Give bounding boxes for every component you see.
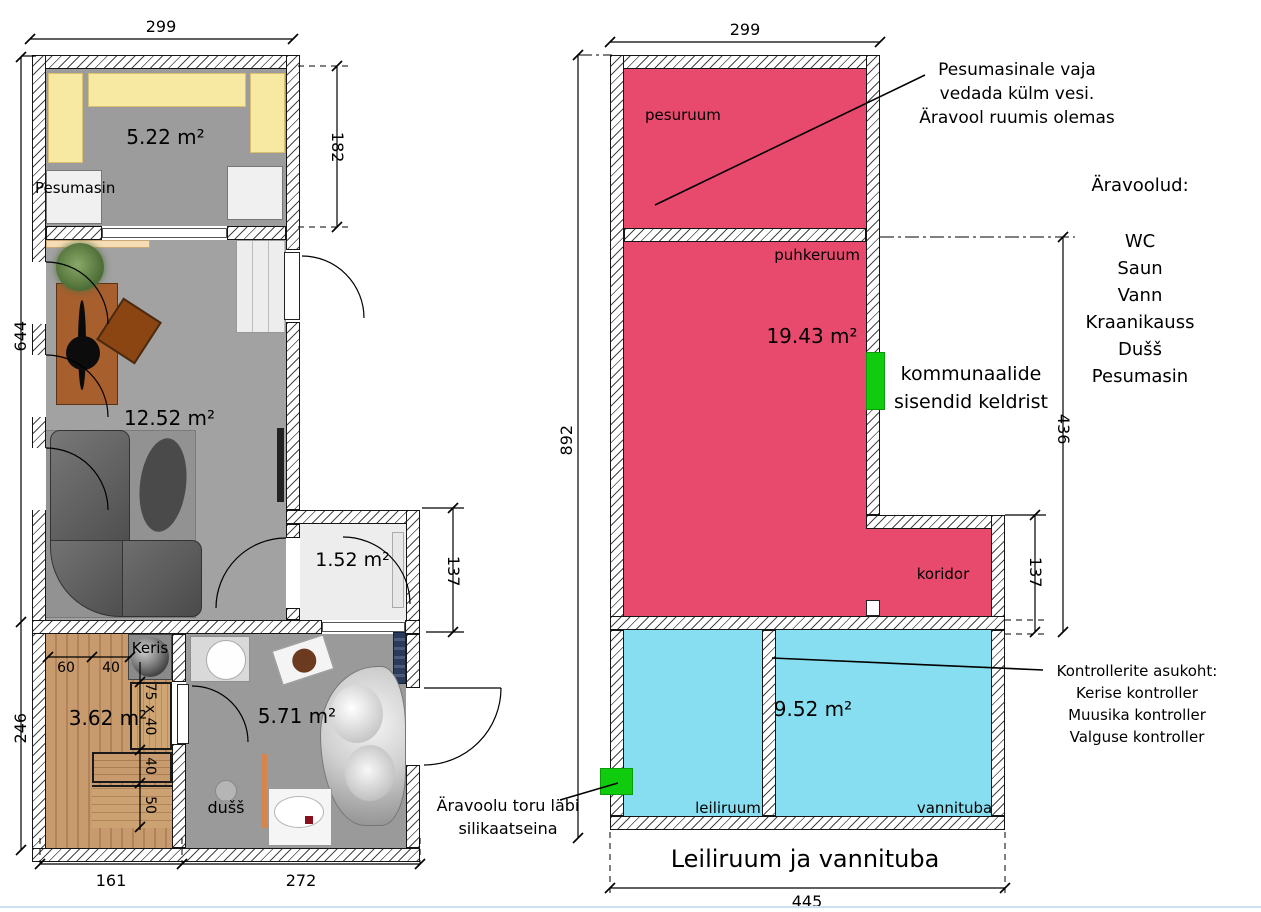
sauna-door-leaf	[177, 684, 189, 744]
sofa-horizontal	[122, 540, 202, 617]
area-laundry: 5.22 m²	[118, 126, 213, 149]
note-controllers: Kontrollerite asukoht: Kerise kontroller…	[1042, 660, 1232, 748]
dim-892: 892	[558, 410, 576, 470]
living-wc-door-gap	[286, 538, 300, 608]
wall-segment	[610, 616, 1005, 630]
leiliruum-room	[624, 630, 762, 816]
wall-segment	[406, 634, 420, 688]
counter-right	[250, 73, 285, 153]
wall-segment	[46, 226, 102, 240]
sauna-dim-50: 50	[142, 775, 158, 835]
note-drain-pipe: Äravoolu toru läbi silikaatseina	[428, 794, 588, 840]
wall-segment	[610, 55, 624, 630]
sink-basin	[274, 796, 324, 828]
label-puhkeruum: puhkeruum	[768, 247, 860, 264]
wall-segment	[405, 620, 420, 634]
dim-445: 445	[777, 893, 837, 911]
appliance-box	[227, 166, 283, 220]
area-wc: 1.52 m²	[310, 550, 395, 572]
sauna-dim-40a: 40	[97, 660, 125, 676]
label-duss: dušš	[194, 799, 258, 817]
wall-segment	[866, 55, 880, 515]
wall-segment	[610, 55, 880, 69]
wall-segment	[286, 608, 300, 620]
toilet-bowl	[206, 640, 246, 680]
koridor-door-post	[866, 600, 880, 616]
label-vannituba: vannituba	[912, 800, 997, 817]
dim-436: 436	[1054, 399, 1072, 459]
plant	[56, 243, 104, 291]
wall-segment	[762, 630, 776, 816]
wall-segment	[286, 510, 420, 524]
window-gap	[32, 262, 46, 324]
entrance-door-leaf	[284, 252, 300, 320]
wall-segment	[227, 226, 286, 240]
dim-top-right-plan: 299	[715, 21, 775, 39]
wall-segment	[866, 515, 1005, 529]
wall-segment	[286, 322, 300, 510]
area-bath-section: 9.52 m²	[768, 698, 858, 721]
wc-room-floor	[300, 524, 406, 620]
wall-segment	[32, 620, 322, 634]
dim-161: 161	[81, 872, 141, 890]
wall-segment	[610, 816, 1005, 830]
drains-heading: Äravoolud:	[1080, 176, 1200, 197]
wall-segment	[991, 630, 1005, 816]
counter-top	[88, 73, 246, 107]
label-pesumasin: Pesumasin	[35, 180, 135, 197]
utility-inlet-marker	[866, 352, 885, 410]
vannituba-room	[776, 630, 991, 816]
wall-segment	[406, 510, 420, 634]
sauna-bench-low	[92, 785, 172, 828]
area-bath: 5.71 m²	[247, 705, 347, 728]
pesuruum-room	[624, 69, 866, 228]
tv	[277, 428, 284, 502]
dim-272: 272	[271, 872, 331, 890]
note-utilities: kommunaalide sisendid keldrist	[886, 360, 1056, 416]
wall-segment	[624, 228, 866, 242]
window-gap	[32, 355, 46, 417]
wall-segment	[286, 524, 300, 538]
label-keris: Keris	[128, 640, 172, 657]
counter-left	[48, 73, 83, 163]
wall-segment	[172, 634, 186, 682]
note-washer: Pesumasinale vaja vedada külm vesi. Ärav…	[903, 58, 1131, 130]
towel-rail	[262, 754, 267, 828]
dim-137-wc: 137	[444, 541, 462, 601]
pass-through-opening	[102, 228, 227, 238]
wall-segment	[991, 515, 1005, 630]
drain-pipe-marker	[600, 768, 633, 795]
dim-137-koridor: 137	[1026, 542, 1044, 602]
wardrobe	[236, 240, 286, 333]
area-puhkeruum: 19.43 m²	[762, 325, 862, 348]
label-pesuruum: pesuruum	[645, 107, 735, 124]
wall-segment	[286, 55, 300, 250]
plan-title: Leiliruum ja vannituba	[650, 846, 960, 874]
wall-segment	[406, 765, 420, 848]
label-leiliruum: leiliruum	[688, 800, 768, 817]
sauna-dim-75x40: 75 x 40	[142, 675, 158, 743]
window-gap	[32, 448, 46, 510]
dim-644: 644	[12, 306, 30, 366]
floorplan-canvas: 299 182 644 246 137 161 272 5.22 m² 12.5…	[0, 0, 1261, 912]
bath-exterior-door-gap	[406, 688, 420, 765]
sofa-vertical	[50, 430, 130, 542]
sauna-bench-mid	[92, 752, 172, 783]
sauna-dim-60: 60	[52, 660, 80, 676]
wall-segment	[32, 55, 300, 69]
label-koridor: koridor	[903, 566, 983, 583]
bottom-divider	[0, 906, 1261, 908]
wall-segment	[32, 848, 420, 862]
area-living: 12.52 m²	[117, 407, 222, 430]
wall-segment	[172, 744, 186, 848]
drains-list: WC Saun Vann Kraanikauss Dušš Pesumasin	[1070, 228, 1210, 390]
wall-shelf	[46, 240, 150, 248]
sink-faucet	[305, 816, 313, 824]
dim-top-left-plan: 299	[131, 18, 191, 36]
puhkeruum-room	[624, 242, 866, 616]
dim-182: 182	[328, 117, 346, 177]
wc-door-opening	[322, 622, 405, 632]
dim-246: 246	[12, 698, 30, 758]
desk-chair	[66, 336, 100, 370]
